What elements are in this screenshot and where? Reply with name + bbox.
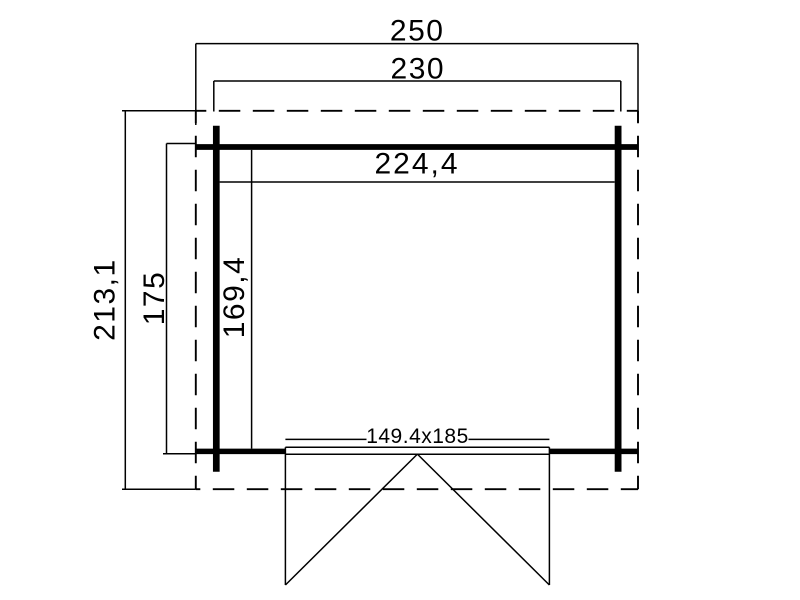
svg-text:224,4: 224,4 (374, 148, 459, 181)
svg-text:169,4: 169,4 (218, 256, 251, 339)
svg-text:250: 250 (390, 15, 445, 48)
svg-text:149.4x185: 149.4x185 (366, 425, 469, 448)
svg-text:230: 230 (391, 52, 446, 85)
svg-text:175: 175 (138, 271, 171, 326)
svg-text:213,1: 213,1 (89, 258, 122, 341)
